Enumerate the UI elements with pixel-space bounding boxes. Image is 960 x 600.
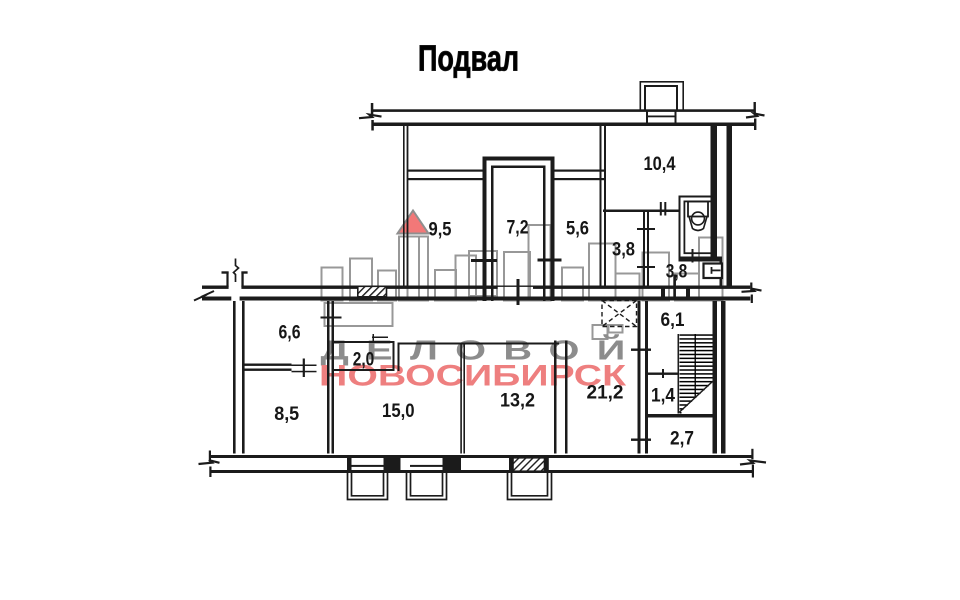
svg-text:6,6: 6,6	[279, 322, 301, 344]
svg-text:3,8: 3,8	[666, 261, 688, 283]
svg-text:7,2: 7,2	[507, 217, 529, 239]
svg-text:21,2: 21,2	[587, 382, 624, 404]
svg-text:1,4: 1,4	[651, 385, 675, 407]
svg-text:13,2: 13,2	[500, 390, 535, 412]
svg-text:8,5: 8,5	[274, 403, 299, 425]
svg-text:6,1: 6,1	[661, 309, 685, 331]
svg-text:Подвал: Подвал	[418, 38, 519, 79]
svg-text:10,4: 10,4	[644, 153, 676, 175]
svg-text:2,0: 2,0	[353, 349, 375, 371]
svg-text:2,7: 2,7	[670, 428, 694, 450]
svg-text:3,8: 3,8	[612, 239, 635, 261]
svg-text:15,0: 15,0	[382, 400, 415, 422]
svg-text:9,5: 9,5	[429, 219, 452, 241]
svg-text:5,6: 5,6	[566, 218, 589, 240]
